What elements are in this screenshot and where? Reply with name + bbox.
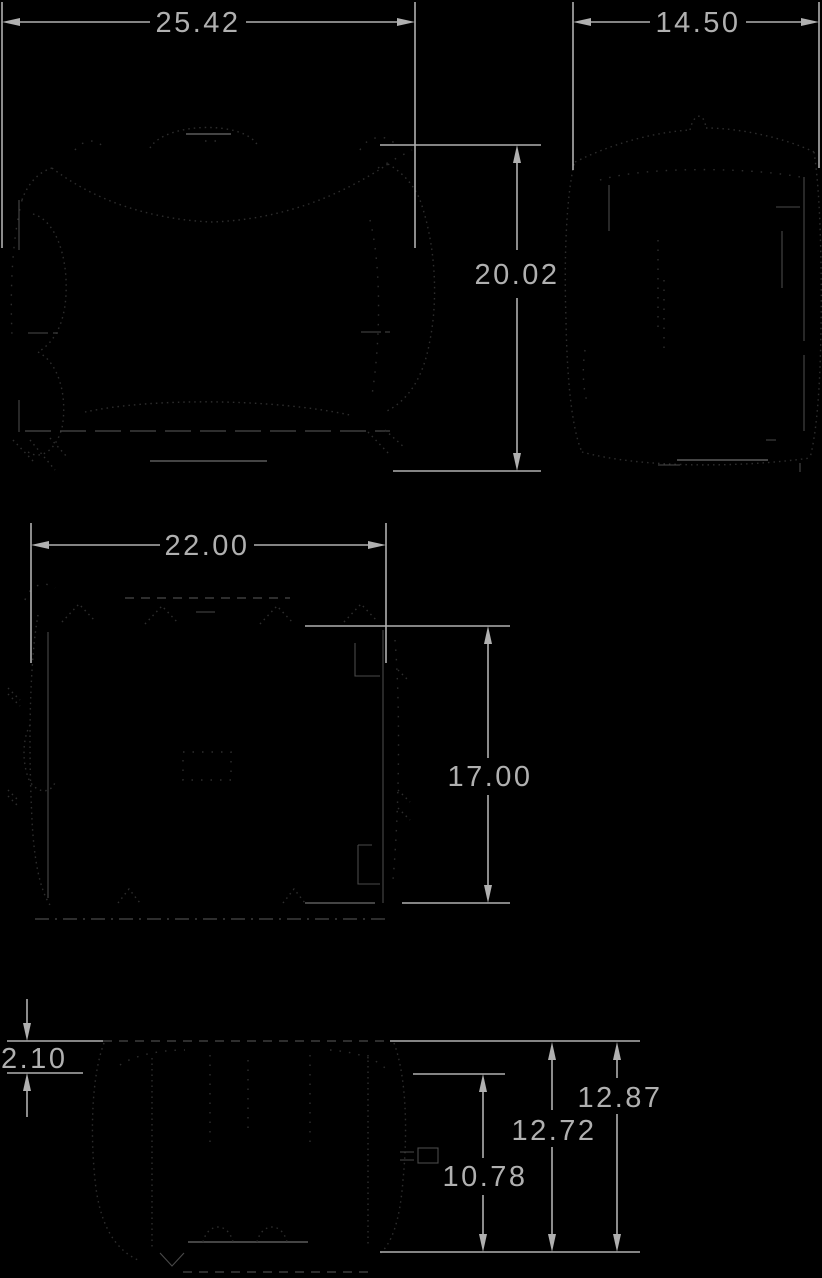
arrowhead-up	[23, 1073, 31, 1091]
rear-view-outline-segment	[145, 606, 179, 624]
arrowhead-down	[479, 1234, 487, 1252]
front-view-outline-segment	[385, 164, 435, 412]
side-view-outline-segment	[575, 130, 690, 162]
bottom-view-outline-segment	[92, 1043, 138, 1260]
side-view-outline-segment	[690, 116, 706, 130]
front-view-outline-segment	[28, 352, 64, 455]
arrowhead-up	[548, 1042, 556, 1060]
bottom-port-height-label: 10.78	[442, 1161, 527, 1193]
side-view-outline-segment	[582, 452, 810, 465]
rear-view-outline-segment	[118, 889, 305, 903]
rear-view-outline-segment	[260, 606, 294, 624]
front-view-outline-segment	[11, 200, 22, 335]
side-width-dimension: 14.50	[573, 2, 819, 170]
front-height-label: 20.02	[474, 259, 559, 291]
front-view-outline-segment	[52, 164, 388, 222]
front-width-dimension: 25.42	[2, 2, 415, 248]
rear-view-outline-segment	[25, 584, 55, 600]
bottom-lip-label: 2.10	[1, 1043, 67, 1075]
front-view-outline-segment	[378, 150, 412, 168]
front-view-outline	[11, 127, 434, 470]
dimension-drawing: 25.42 14.50 20.02 22.00	[0, 0, 822, 1278]
arrowhead-up	[479, 1074, 487, 1092]
bottom-drain-fitting	[418, 1148, 438, 1163]
bottom-view-outline-segment	[257, 1227, 287, 1242]
front-view-outline-segment	[85, 402, 350, 415]
side-view-outline-segment	[658, 240, 664, 350]
arrowhead-down	[23, 1023, 31, 1041]
side-view-outline-segment	[565, 164, 582, 452]
rear-nameplate	[183, 752, 231, 780]
front-view-outline-segment	[368, 430, 405, 455]
rear-outlet-box	[355, 643, 380, 676]
rear-view-outline	[8, 584, 410, 919]
side-view-outline	[565, 116, 821, 472]
bottom-view-outline-segment	[400, 1152, 414, 1160]
bottom-height-extension-lines	[380, 1041, 640, 1252]
bottom-view-outline-segment	[210, 1055, 310, 1150]
rear-view-outline-segment	[30, 615, 50, 905]
rear-lower-fitting	[358, 845, 380, 884]
arrowhead-left	[2, 18, 20, 26]
front-view-outline-segment	[13, 438, 68, 470]
rear-width-dimension: 22.00	[31, 523, 386, 663]
bottom-overall-height-label: 12.87	[577, 1082, 662, 1114]
arrowhead-left	[31, 541, 49, 549]
front-view-outline-segment	[33, 214, 66, 352]
arrowhead-down	[548, 1234, 556, 1252]
arrowhead-up	[513, 145, 521, 163]
bottom-v-notch	[160, 1253, 184, 1266]
rear-view-outline-segment	[8, 688, 20, 806]
front-width-label: 25.42	[155, 7, 240, 39]
bottom-port-height-dimension: 10.78	[442, 1074, 527, 1252]
bottom-overall-height-dimension: 12.87	[577, 1042, 662, 1252]
arrowhead-down	[484, 885, 492, 903]
bottom-ledge-height-label: 12.72	[511, 1115, 596, 1147]
side-view-outline-segment	[600, 170, 805, 180]
bottom-ledge-height-dimension: 12.72	[511, 1042, 596, 1252]
front-view-outline-segment	[370, 220, 379, 395]
front-view-outline-segment	[150, 127, 258, 148]
arrowhead-down	[613, 1234, 621, 1252]
side-view-outline-segment	[706, 128, 814, 152]
side-view-outline-segment	[810, 152, 821, 458]
rear-width-label: 22.00	[164, 530, 249, 562]
bottom-view-outline-segment	[378, 1043, 406, 1255]
arrowhead-up	[484, 626, 492, 644]
front-view-outline-segment	[75, 141, 102, 150]
arrowhead-right	[368, 541, 386, 549]
rear-view-outline-segment	[62, 604, 96, 622]
bottom-view-outline-segment	[120, 1050, 385, 1068]
arrowhead-left	[573, 18, 591, 26]
bottom-lip-dimension: 2.10	[1, 999, 103, 1117]
side-width-label: 14.50	[655, 7, 740, 39]
rear-view-outline-segment	[24, 725, 56, 791]
front-view-outline-segment	[22, 168, 52, 200]
arrowhead-up	[613, 1042, 621, 1060]
side-view-outline-segment	[658, 440, 800, 472]
front-view-outline-segment	[360, 137, 396, 150]
rear-view-outline-segment	[393, 640, 399, 880]
rear-view-outline-segment	[344, 604, 378, 622]
rear-height-dimension: 17.00	[305, 626, 533, 903]
rear-view-outline-segment	[398, 670, 410, 820]
arrowhead-down	[513, 453, 521, 471]
arrowhead-right	[397, 18, 415, 26]
drawing-svg: 25.42 14.50 20.02 22.00	[0, 0, 822, 1278]
bottom-view-outline-segment	[203, 1227, 233, 1242]
front-height-dimension: 20.02	[380, 145, 560, 471]
rear-height-label: 17.00	[447, 761, 532, 793]
bottom-view-outline	[92, 1041, 438, 1272]
side-view-outline-segment	[583, 350, 588, 405]
arrowhead-right	[801, 18, 819, 26]
